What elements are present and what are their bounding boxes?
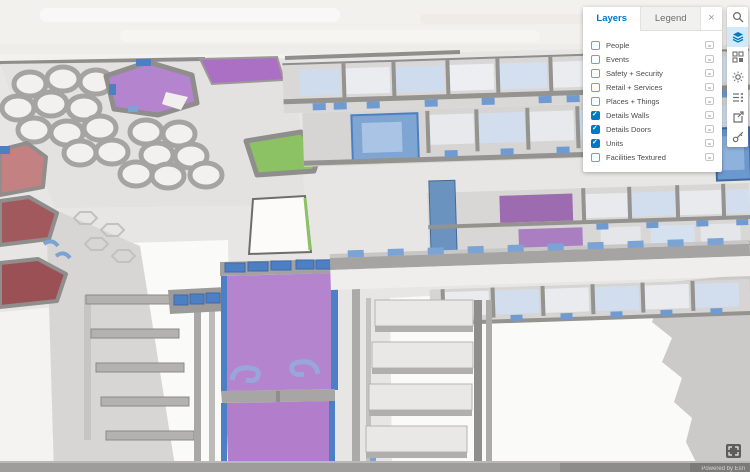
layer-row-details-doors[interactable]: Details Doors bbox=[583, 122, 722, 136]
close-icon[interactable]: × bbox=[700, 7, 722, 30]
unit-purple-large bbox=[220, 259, 338, 463]
toolbar-share-button[interactable] bbox=[727, 107, 748, 127]
layer-checkbox[interactable] bbox=[591, 97, 600, 106]
layer-checkbox[interactable] bbox=[591, 83, 600, 92]
layer-row-safety-security[interactable]: Safety + Security bbox=[583, 66, 722, 80]
attribution-text: Powered by Esri bbox=[701, 466, 745, 472]
layer-row-events[interactable]: Events bbox=[583, 52, 722, 66]
toolbar-basemap-button[interactable] bbox=[727, 47, 748, 67]
layer-checkbox[interactable] bbox=[591, 125, 600, 134]
key-icon bbox=[732, 131, 744, 143]
layer-options-icon[interactable] bbox=[705, 83, 714, 91]
layer-checkbox[interactable] bbox=[591, 41, 600, 50]
toolbar-levels-button[interactable] bbox=[727, 87, 748, 107]
toolbar-tools-button[interactable] bbox=[727, 127, 748, 147]
layer-row-places-things[interactable]: Places + Things bbox=[583, 94, 722, 108]
layer-label: People bbox=[606, 41, 629, 50]
layer-list: People Events Safety + Security Retail +… bbox=[583, 31, 722, 172]
search-icon bbox=[732, 11, 744, 23]
tab-legend[interactable]: Legend bbox=[640, 7, 700, 30]
layer-label: Details Walls bbox=[606, 111, 649, 120]
app-window: Powered by Esri Layers Legend × People E… bbox=[0, 0, 750, 472]
daylight-sun-icon bbox=[732, 71, 744, 83]
tab-layers[interactable]: Layers bbox=[583, 7, 640, 31]
share-icon bbox=[732, 111, 744, 123]
layer-label: Places + Things bbox=[606, 97, 659, 106]
panel-tabbar: Layers Legend × bbox=[583, 7, 722, 31]
layer-label: Events bbox=[606, 55, 629, 64]
layer-label: Retail + Services bbox=[606, 83, 662, 92]
layer-options-icon[interactable] bbox=[705, 125, 714, 133]
layer-checkbox[interactable] bbox=[591, 153, 600, 162]
levels-icon bbox=[732, 91, 744, 103]
layer-row-facilities-textured[interactable]: Facilities Textured bbox=[583, 150, 722, 164]
map-toolbar bbox=[727, 7, 748, 147]
layer-checkbox[interactable] bbox=[591, 111, 600, 120]
layer-row-retail-services[interactable]: Retail + Services bbox=[583, 80, 722, 94]
unit-purple-top bbox=[200, 57, 284, 84]
toolbar-daylight-button[interactable] bbox=[727, 67, 748, 87]
layer-checkbox[interactable] bbox=[591, 139, 600, 148]
layer-options-icon[interactable] bbox=[705, 41, 714, 49]
basemap-icon bbox=[732, 51, 744, 63]
toolbar-layers-button[interactable] bbox=[727, 27, 748, 47]
layer-options-icon[interactable] bbox=[705, 97, 714, 105]
layer-label: Units bbox=[606, 139, 623, 148]
layers-panel: Layers Legend × People Events Safety + S… bbox=[583, 7, 722, 172]
ground-edge bbox=[0, 461, 750, 472]
toolbar-search-button[interactable] bbox=[727, 7, 748, 27]
layer-options-icon[interactable] bbox=[705, 55, 714, 63]
layer-row-units[interactable]: Units bbox=[583, 136, 722, 150]
layer-label: Facilities Textured bbox=[606, 153, 666, 162]
layers-icon bbox=[732, 31, 744, 43]
layer-options-icon[interactable] bbox=[705, 111, 714, 119]
layer-label: Details Doors bbox=[606, 125, 651, 134]
layer-label: Safety + Security bbox=[606, 69, 663, 78]
layer-row-people[interactable]: People bbox=[583, 38, 722, 52]
layer-options-icon[interactable] bbox=[705, 153, 714, 161]
attribution-expand-icon[interactable] bbox=[726, 444, 741, 458]
layer-options-icon[interactable] bbox=[705, 139, 714, 147]
layer-checkbox[interactable] bbox=[591, 55, 600, 64]
layer-options-icon[interactable] bbox=[705, 69, 714, 77]
door-row-west bbox=[168, 287, 226, 314]
layer-checkbox[interactable] bbox=[591, 69, 600, 78]
outlined-room bbox=[249, 196, 311, 254]
layer-row-details-walls[interactable]: Details Walls bbox=[583, 108, 722, 122]
